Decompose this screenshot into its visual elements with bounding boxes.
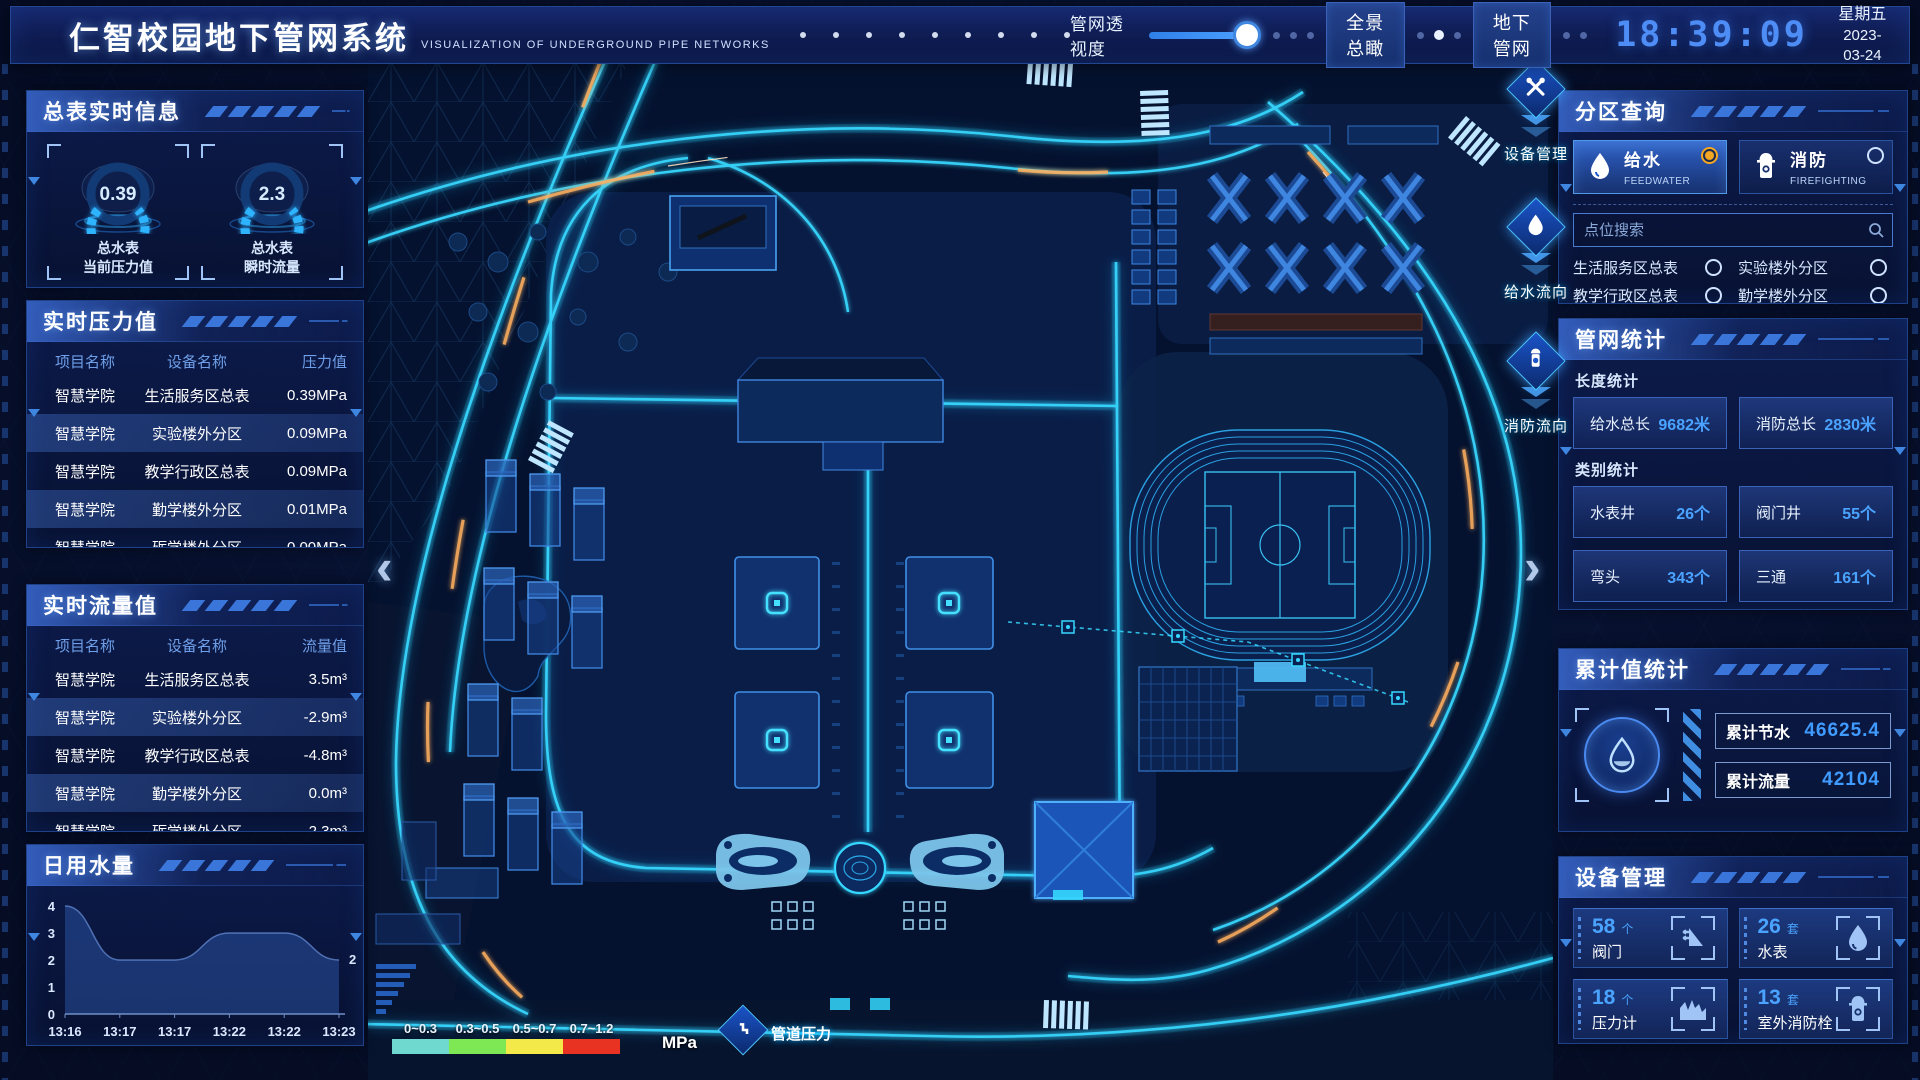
slashes-decoration xyxy=(186,316,293,327)
zone-radio[interactable] xyxy=(1870,259,1887,276)
legend-range: 0~0.3 xyxy=(392,1021,449,1054)
dots-separator xyxy=(1563,32,1587,39)
panel-title: 总表实时信息 xyxy=(43,96,181,126)
device-card-valve[interactable]: 58个 阀门 xyxy=(1573,908,1728,968)
header-dots-decoration xyxy=(800,32,1070,38)
svg-text:2: 2 xyxy=(48,953,55,968)
svg-text:13:23: 13:23 xyxy=(322,1024,355,1039)
slashes-decoration xyxy=(209,106,316,117)
slashes-decoration xyxy=(1695,872,1802,883)
zone-item[interactable]: 生活服务区总表 xyxy=(1573,253,1728,281)
hydrant-icon xyxy=(1526,348,1546,375)
slashes-decoration xyxy=(1718,664,1825,675)
panel-title: 设备管理 xyxy=(1575,862,1667,892)
panel-realtime-pressure: 实时压力值 项目名称设备名称压力值 智慧学院生活服务区总表0.39MPa 智慧学… xyxy=(26,300,364,548)
cumulative-saving: 累计节水46625.4 xyxy=(1715,713,1891,749)
map-tool-label: 消防流向 xyxy=(1488,415,1584,436)
underground-button[interactable]: 地下管网 xyxy=(1473,2,1552,68)
zone-item[interactable]: 教学行政区总表 xyxy=(1573,281,1728,304)
pressure-legend: 0~0.3 0.3~0.5 0.5~0.7 0.7~1.2 MPa 管道压力 xyxy=(392,1012,831,1054)
campus-map[interactable] xyxy=(368,62,1553,1080)
pipe-pressure-icon[interactable] xyxy=(718,1005,769,1056)
transparency-slider[interactable] xyxy=(1149,32,1261,39)
slashes-decoration xyxy=(186,600,293,611)
svg-text:1: 1 xyxy=(48,980,55,995)
tab-sublabel: FEEDWATER xyxy=(1624,176,1690,187)
svg-text:13:22: 13:22 xyxy=(213,1024,246,1039)
gauge-card: 2.3 总水表 瞬时流量 xyxy=(201,144,343,280)
gauge-value: 0.39 xyxy=(100,184,137,205)
table-row[interactable]: 智慧学院实验楼外分区0.09MPa xyxy=(27,414,363,452)
flow-table: 智慧学院生活服务区总表3.5m³ 智慧学院实验楼外分区-2.9m³ 智慧学院教学… xyxy=(27,660,363,832)
table-row[interactable]: 智慧学院砺学楼外分区-2.3m³ xyxy=(27,812,363,832)
edge-decoration-left xyxy=(2,64,8,1080)
zone-radio[interactable] xyxy=(1870,287,1887,304)
device-card-outdoor-hydrant[interactable]: 13套 室外消防栓 xyxy=(1739,979,1894,1039)
water-drop-icon xyxy=(1584,717,1660,793)
search-box[interactable] xyxy=(1573,213,1893,247)
hazard-stripes-decoration xyxy=(1683,709,1701,801)
device-card-pressure-gauge[interactable]: 18个 压力计 xyxy=(1573,979,1728,1039)
gauge-label: 瞬时流量 xyxy=(201,258,343,277)
stat-box: 给水总长9682米 xyxy=(1573,397,1727,449)
tab-feedwater[interactable]: 给水 FEEDWATER xyxy=(1573,140,1727,194)
table-header: 项目名称设备名称流量值 xyxy=(27,630,363,660)
clock: 18:39:09 xyxy=(1615,15,1808,55)
panel-title: 实时压力值 xyxy=(43,306,158,336)
map-tool-label: 给水流向 xyxy=(1488,281,1584,302)
zone-item[interactable]: 实验楼外分区 xyxy=(1738,253,1893,281)
zone-item[interactable]: 勤学楼外分区 xyxy=(1738,281,1893,304)
droplet-icon xyxy=(1588,152,1614,182)
legend-range-label: 0~0.3 xyxy=(392,1021,449,1036)
stat-box: 水表井26个 xyxy=(1573,486,1727,538)
gauge-label: 当前压力值 xyxy=(47,258,189,277)
tab-radio[interactable] xyxy=(1701,147,1718,164)
gauge-card: 0.39 总水表 当前压力值 xyxy=(47,144,189,280)
tab-label: 给水 xyxy=(1624,151,1662,170)
pipe-pressure-label: 管道压力 xyxy=(771,1023,831,1044)
panel-title: 累计值统计 xyxy=(1575,654,1690,684)
map-next-arrow[interactable]: › xyxy=(1524,542,1541,592)
edge-decoration-right xyxy=(1912,64,1918,1080)
table-row[interactable]: 智慧学院生活服务区总表0.39MPa xyxy=(27,376,363,414)
panel-title: 实时流量值 xyxy=(43,590,158,620)
panel-title: 管网统计 xyxy=(1575,324,1667,354)
table-row[interactable]: 智慧学院教学行政区总表0.09MPa xyxy=(27,452,363,490)
cumulative-flow: 累计流量42104 xyxy=(1715,762,1891,798)
transparency-label: 管网透视度 xyxy=(1070,10,1137,60)
transparency-slider-knob[interactable] xyxy=(1233,21,1261,49)
tab-sublabel: FIREFIGHTING xyxy=(1790,176,1867,187)
table-row[interactable]: 智慧学院生活服务区总表3.5m³ xyxy=(27,660,363,698)
panel-pipe-stats: 管网统计 长度统计 给水总长9682米 消防总长2830米 类别统计 水表井26… xyxy=(1558,318,1908,610)
panel-realtime-info: 总表实时信息 0.39 总水表 当前压力值 xyxy=(26,90,364,288)
legend-range-label: 0.3~0.5 xyxy=(449,1021,506,1036)
device-card-water-meter[interactable]: 26套 水表 xyxy=(1739,908,1894,968)
daily-water-chart: 0123413:1613:1713:1713:2213:2213:23 2 xyxy=(29,892,359,1044)
svg-text:13:17: 13:17 xyxy=(158,1024,191,1039)
stat-box: 阀门井55个 xyxy=(1739,486,1893,538)
outdoor-hydrant-icon xyxy=(1836,987,1880,1031)
panel-daily-water: 日用水量 0123413:1613:1713:1713:2213:2213:23… xyxy=(26,844,364,1046)
svg-text:3: 3 xyxy=(48,926,55,941)
stat-box: 弯头343个 xyxy=(1573,550,1727,602)
gauge-label: 总水表 xyxy=(47,239,189,258)
gauge-value: 2.3 xyxy=(259,184,285,205)
pressure-table: 智慧学院生活服务区总表0.39MPa 智慧学院实验楼外分区0.09MPa 智慧学… xyxy=(27,376,363,548)
map-prev-arrow[interactable]: ‹ xyxy=(376,542,393,592)
map-tool-feedwater-flow[interactable]: 给水流向 xyxy=(1488,206,1584,302)
legend-range-label: 0.5~0.7 xyxy=(506,1021,563,1036)
gauge-label: 总水表 xyxy=(201,239,343,258)
panel-device-management: 设备管理 58个 阀门 26套 水表 18个 压力计 13套 室 xyxy=(1558,856,1908,1044)
water-saving-icon-card xyxy=(1575,708,1669,802)
app-subtitle: VISUALIZATION OF UNDERGROUND PIPE NETWOR… xyxy=(421,39,770,51)
legend-range: 0.5~0.7 xyxy=(506,1021,563,1054)
svg-text:4: 4 xyxy=(48,899,56,914)
campus-map-svg xyxy=(368,62,1553,1080)
weekday: 星期五 xyxy=(1834,4,1891,26)
legend-range: 0.3~0.5 xyxy=(449,1021,506,1054)
zone-radio[interactable] xyxy=(1705,259,1722,276)
panel-cumulative: 累计值统计 累计节水46625.4 累计流量42104 xyxy=(1558,648,1908,832)
legend-range: 0.7~1.2 xyxy=(563,1021,620,1054)
map-tool-device[interactable]: 设备管理 xyxy=(1488,68,1584,164)
table-row[interactable]: 智慧学院勤学楼外分区0.0m³ xyxy=(27,774,363,812)
panel-realtime-flow: 实时流量值 项目名称设备名称流量值 智慧学院生活服务区总表3.5m³ 智慧学院实… xyxy=(26,584,364,832)
app-title: 仁智校园地下管网系统 xyxy=(69,13,409,58)
stat-box: 消防总长2830米 xyxy=(1739,397,1893,449)
wrench-icon xyxy=(1525,76,1547,103)
date: 2023-03-24 xyxy=(1834,26,1891,67)
table-row[interactable]: 智慧学院实验楼外分区-2.9m³ xyxy=(27,698,363,736)
table-row[interactable]: 智慧学院砺学楼外分区0.00MPa xyxy=(27,528,363,548)
pressure-gauge-icon xyxy=(1671,987,1715,1031)
hydrant-icon xyxy=(1754,152,1780,182)
tab-firefighting[interactable]: 消防 FIREFIGHTING xyxy=(1739,140,1893,194)
app-header: 仁智校园地下管网系统 VISUALIZATION OF UNDERGROUND … xyxy=(10,6,1910,64)
dashed-separator xyxy=(1573,204,1893,205)
tab-label: 消防 xyxy=(1790,151,1828,170)
panel-zone-query: 分区查询 给水 FEEDWATER 消防 FIREFIGHTING 生活服务区总… xyxy=(1558,90,1908,304)
table-row[interactable]: 智慧学院勤学楼外分区0.01MPa xyxy=(27,490,363,528)
legend-color-bar xyxy=(449,1039,506,1054)
legend-unit: MPa xyxy=(662,1033,697,1053)
table-row[interactable]: 智慧学院教学行政区总表-4.8m³ xyxy=(27,736,363,774)
svg-text:13:22: 13:22 xyxy=(268,1024,301,1039)
panel-title: 日用水量 xyxy=(43,850,135,880)
slashes-decoration xyxy=(163,860,270,871)
legend-range-label: 0.7~1.2 xyxy=(563,1021,620,1036)
svg-text:2: 2 xyxy=(349,952,356,967)
svg-text:13:16: 13:16 xyxy=(48,1024,81,1039)
valve-icon xyxy=(1671,916,1715,960)
map-tool-fire-flow[interactable]: 消防流向 xyxy=(1488,340,1584,436)
category-stats-label: 类别统计 xyxy=(1559,449,1907,486)
zone-item-list: 生活服务区总表 实验楼外分区 教学行政区总表 勤学楼外分区 砺学楼外分区 宿舍区… xyxy=(1559,247,1907,304)
slashes-decoration xyxy=(1695,106,1802,117)
length-stats-label: 长度统计 xyxy=(1559,360,1907,397)
gauge-dial: 0.39 xyxy=(58,148,178,234)
svg-text:13:17: 13:17 xyxy=(103,1024,136,1039)
water-meter-icon xyxy=(1836,916,1880,960)
search-input[interactable] xyxy=(1574,222,1868,239)
legend-color-bar xyxy=(506,1039,563,1054)
legend-color-bar xyxy=(392,1039,449,1054)
legend-color-bar xyxy=(563,1039,620,1054)
gauge-dial: 2.3 xyxy=(212,148,332,234)
zone-radio[interactable] xyxy=(1705,287,1722,304)
tab-radio[interactable] xyxy=(1867,147,1884,164)
stat-box: 三通161个 xyxy=(1739,550,1893,602)
table-header: 项目名称设备名称压力值 xyxy=(27,346,363,376)
droplet-icon xyxy=(1526,214,1546,241)
dots-separator xyxy=(1273,32,1314,39)
search-icon xyxy=(1868,222,1884,238)
panel-title: 分区查询 xyxy=(1575,96,1667,126)
overview-button[interactable]: 全景总瞰 xyxy=(1326,2,1405,68)
map-tool-label: 设备管理 xyxy=(1488,143,1584,164)
slashes-decoration xyxy=(1695,334,1802,345)
date-block: 星期五 2023-03-24 xyxy=(1834,4,1891,66)
svg-text:0: 0 xyxy=(48,1007,55,1022)
dots-separator xyxy=(1417,30,1461,40)
